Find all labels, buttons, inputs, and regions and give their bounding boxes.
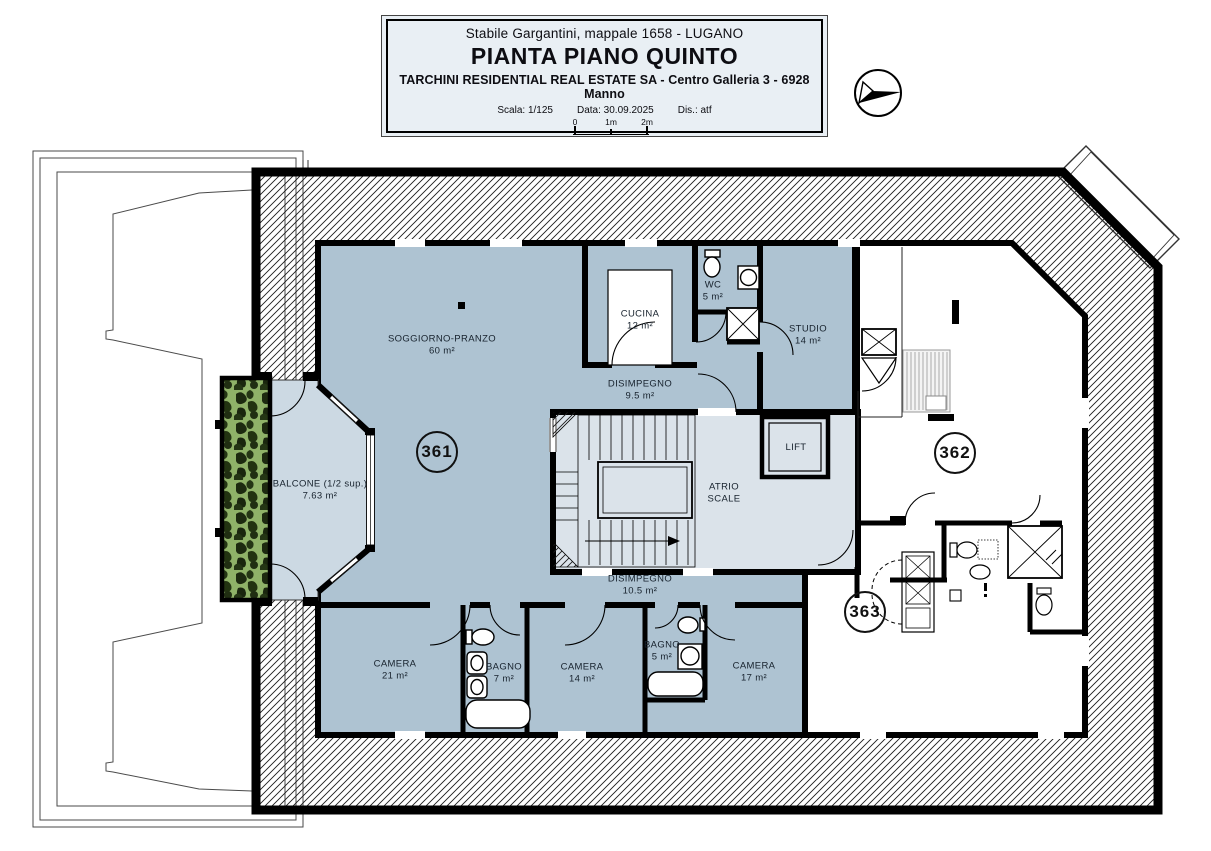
toilet-icon	[1036, 595, 1052, 615]
room-label-lift: LIFT	[786, 442, 807, 454]
bathtub-icon	[466, 700, 530, 728]
floorplan-page: Stabile Gargantini, mappale 1658 - LUGAN…	[0, 0, 1211, 851]
furniture-dot	[458, 302, 465, 309]
room-label-soggiorno: SOGGIORNO-PRANZO60 m²	[388, 334, 496, 359]
room-label-balcone: BALCONE (1/2 sup.)7.63 m²	[273, 479, 367, 504]
company-line: TARCHINI RESIDENTIAL REAL ESTATE SA - Ce…	[388, 73, 821, 101]
north-arrow-icon	[851, 66, 909, 125]
room-label-bagno-5: BAGNO5 m²	[644, 640, 680, 665]
scale-bar: 0 1m 2m	[573, 117, 649, 135]
sink-icon	[681, 647, 699, 665]
title-block: Stabile Gargantini, mappale 1658 - LUGAN…	[381, 15, 828, 137]
room-label-cucina: CUCINA12 m²	[621, 309, 660, 334]
project-subtitle: Stabile Gargantini, mappale 1658 - LUGAN…	[388, 26, 821, 41]
drafter-label: Dis.: atf	[678, 105, 712, 116]
toilet-icon	[704, 257, 720, 277]
plan-meta: Scala: 1/125 Data: 30.09.2025 Dis.: atf	[388, 105, 821, 116]
room-label-atrio-scale: ATRIOSCALE	[708, 482, 741, 507]
sink-icon	[741, 270, 757, 286]
scale-label: Scala: 1/125	[497, 105, 553, 116]
unit-badge-363: 363	[844, 591, 886, 633]
plan-title: PIANTA PIANO QUINTO	[388, 43, 821, 70]
room-label-camera-21: CAMERA21 m²	[374, 659, 417, 684]
room-label-bagno-7: BAGNO7 m²	[486, 662, 522, 687]
toilet-icon	[472, 629, 494, 645]
room-label-studio: STUDIO14 m²	[789, 324, 827, 349]
planter	[222, 378, 270, 600]
unit-badge-362: 362	[934, 432, 976, 474]
unit-badge-361: 361	[416, 431, 458, 473]
toilet-icon	[957, 542, 977, 558]
bathtub-icon	[648, 672, 703, 696]
room-label-camera-17: CAMERA17 m²	[733, 661, 776, 686]
date-label: Data: 30.09.2025	[577, 105, 654, 116]
room-label-camera-14: CAMERA14 m²	[561, 662, 604, 687]
room-label-wc: WC5 m²	[703, 280, 723, 305]
toilet-icon	[678, 617, 698, 633]
grille-icon	[903, 350, 954, 421]
room-label-disimpegno-9: DISIMPEGNO9.5 m²	[608, 379, 672, 404]
sink-icon	[970, 565, 990, 579]
room-label-disimpegno-10: DISIMPEGNO10.5 m²	[608, 574, 672, 599]
